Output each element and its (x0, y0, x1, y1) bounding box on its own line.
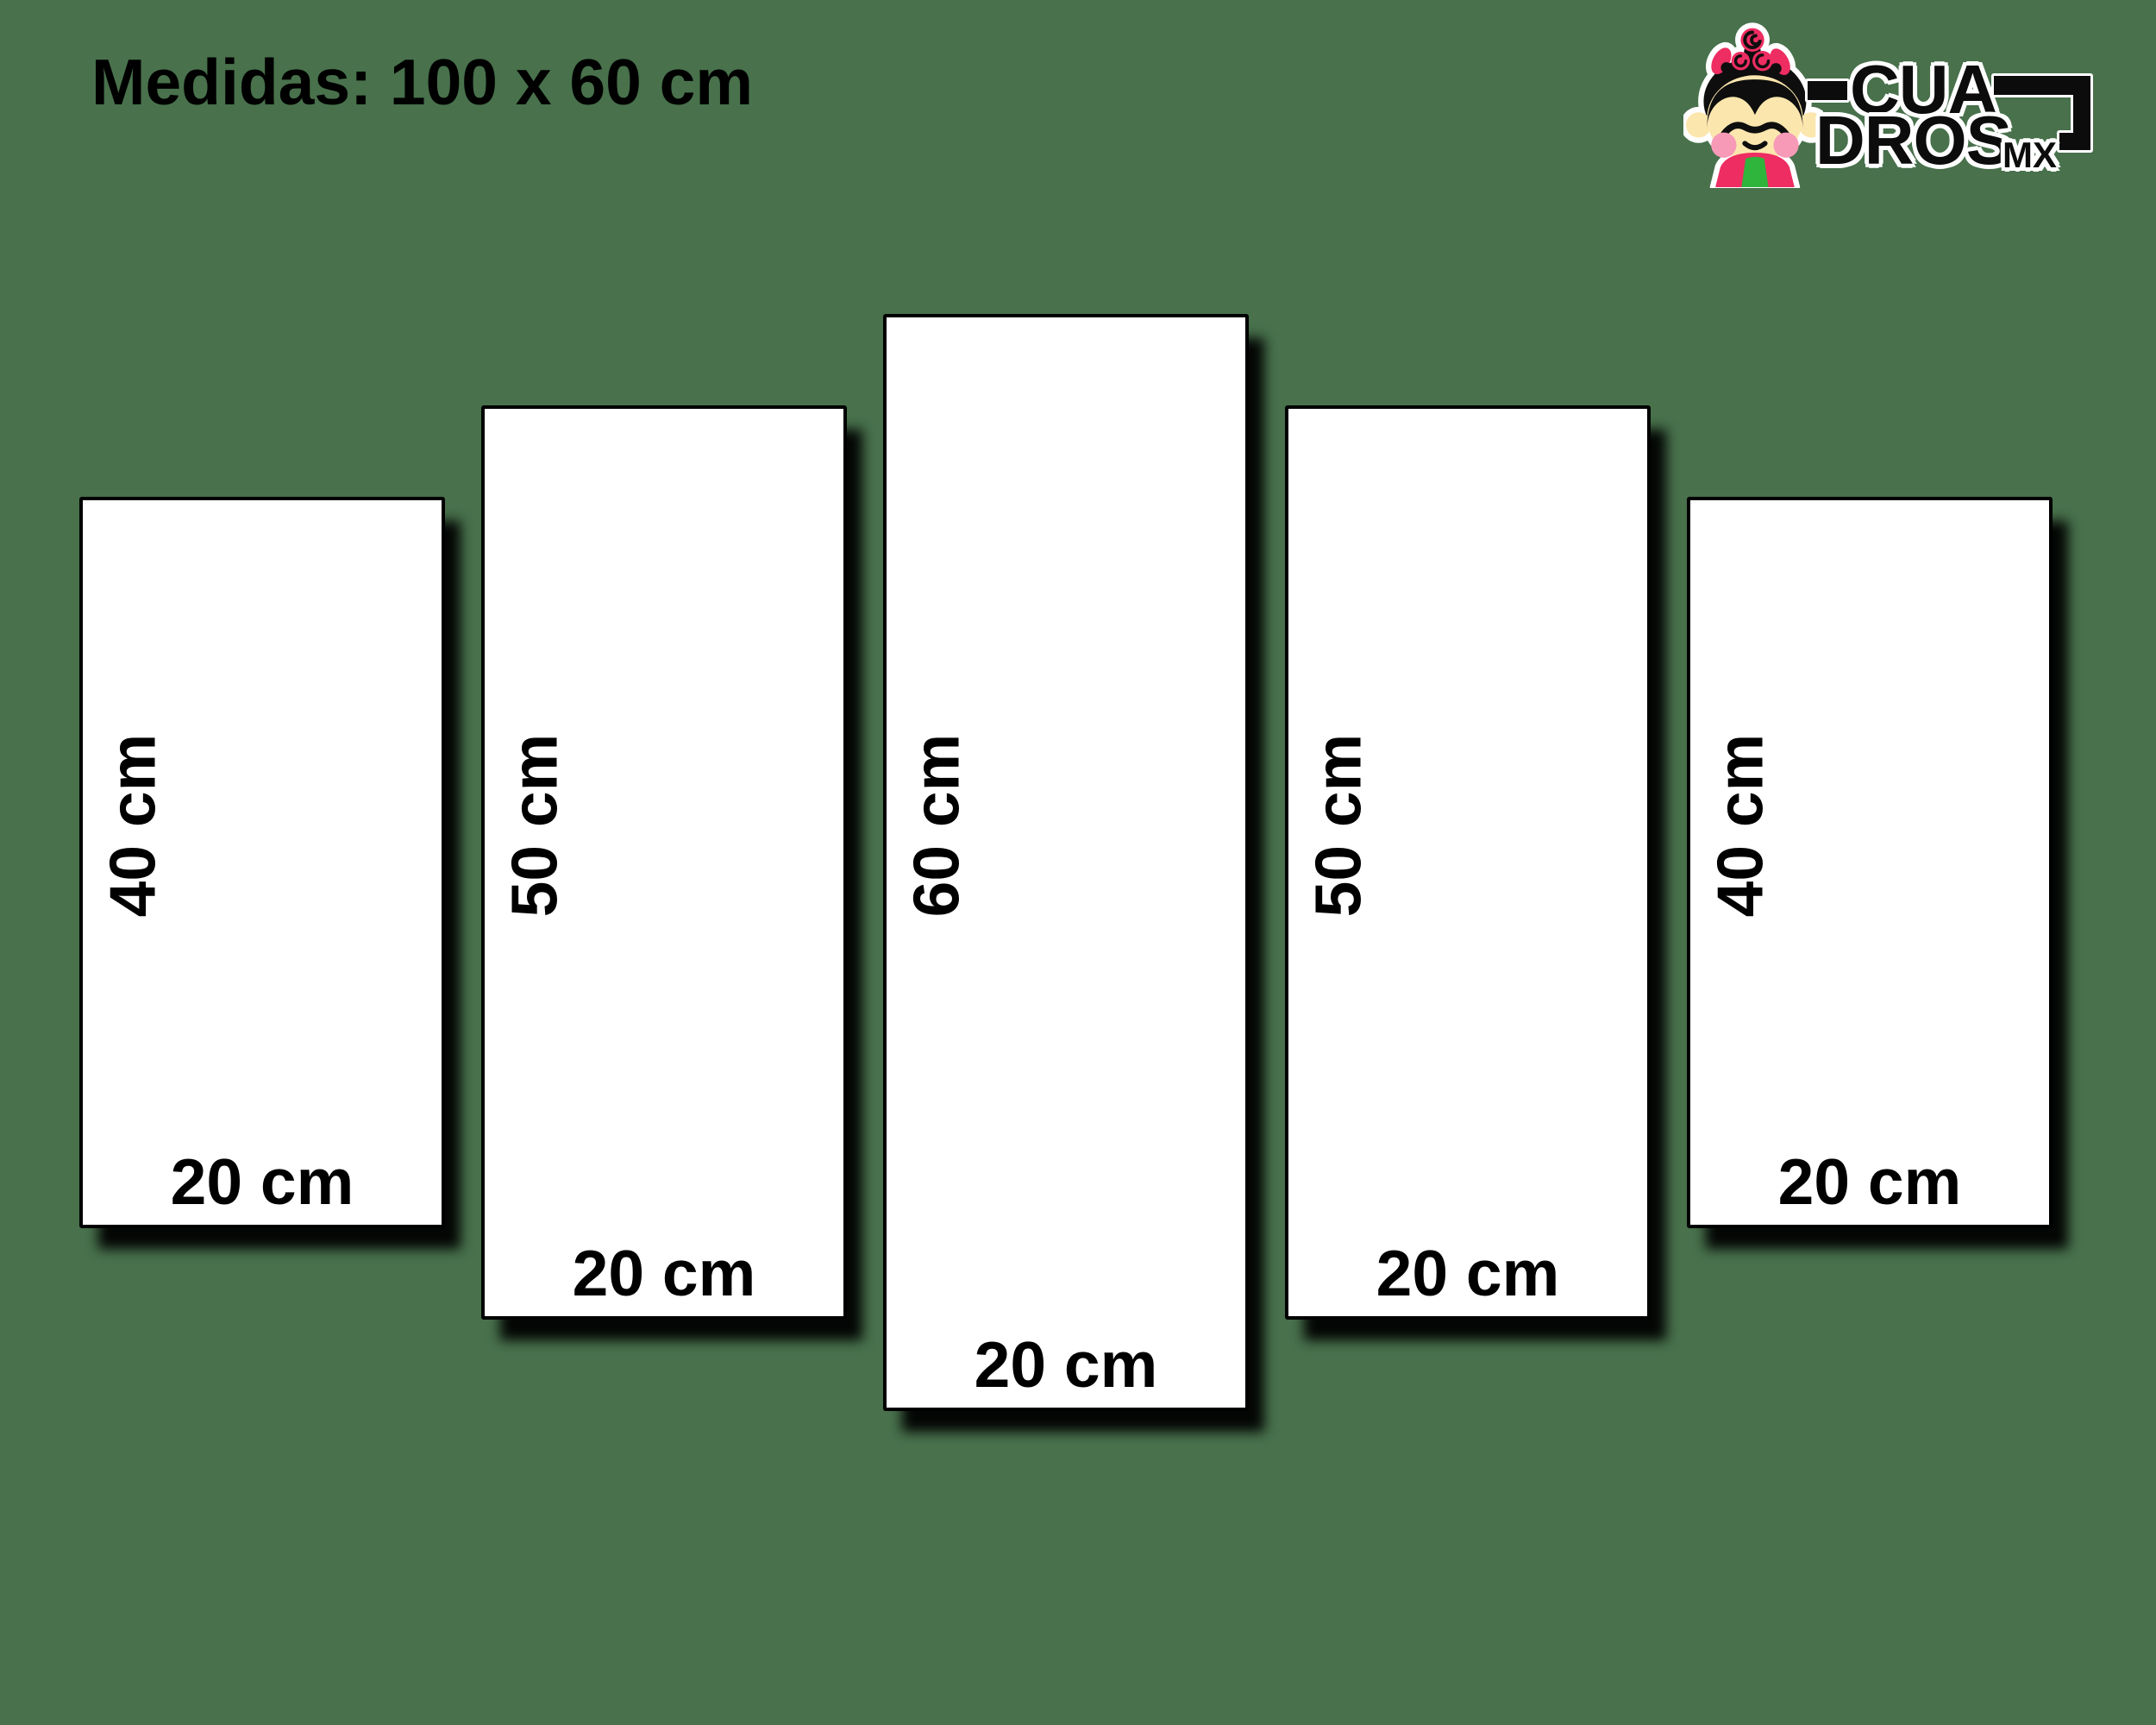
panel-height-label: 40 cm (1708, 734, 1773, 918)
panel-height-label: 60 cm (905, 734, 969, 918)
canvas-panel-60cm-center: 60 cm 20 cm (883, 314, 1249, 1411)
canvas-panel-40cm-far-right: 40 cm 20 cm (1687, 497, 2053, 1228)
blush-cheek (1773, 133, 1798, 158)
canvas-panel-50cm-left: 50 cm 20 cm (481, 405, 847, 1320)
panel-height-label: 40 cm (101, 734, 166, 918)
product-dimensions-diagram: Medidas: 100 x 60 cm 40 cm 20 cm 50 cm 2… (0, 0, 2156, 1725)
canvas-panel-40cm-far-left: 40 cm 20 cm (79, 497, 445, 1228)
panel-width-label: 20 cm (171, 1150, 354, 1214)
panel-width-label: 20 cm (1376, 1241, 1560, 1306)
panel-height-label: 50 cm (503, 734, 567, 918)
panel-width-label: 20 cm (573, 1241, 756, 1306)
panel-width-label: 20 cm (975, 1333, 1158, 1397)
panel-height-label: 50 cm (1307, 734, 1371, 918)
blush-cheek (1711, 133, 1736, 158)
measurements-title: Medidas: 100 x 60 cm (91, 47, 753, 118)
brand-text-line2: DROS (1815, 106, 2011, 175)
brand-text-mx: MX (2002, 137, 2057, 173)
canvas-panel-50cm-right: 50 cm 20 cm (1285, 405, 1651, 1320)
panel-width-label: 20 cm (1778, 1150, 1962, 1214)
dress-collar (1741, 157, 1768, 187)
cuadrosmx-logo: CUA DROS MX (1682, 9, 2147, 198)
